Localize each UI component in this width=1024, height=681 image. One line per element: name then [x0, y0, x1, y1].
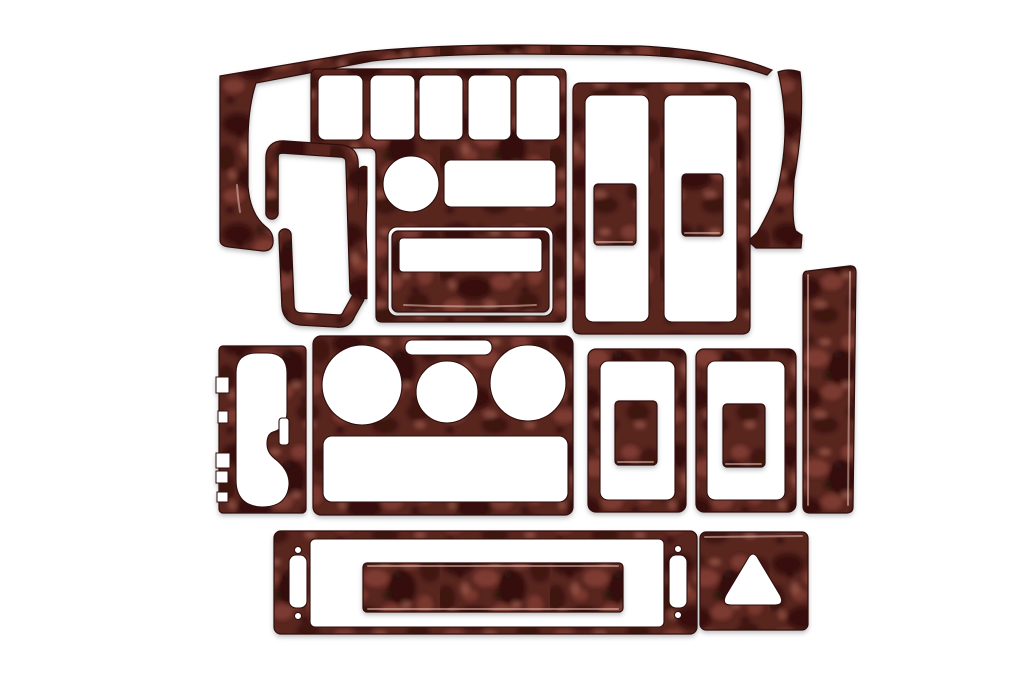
trim-kit-illustration: [0, 0, 1024, 681]
cutout-top-slot: [405, 340, 492, 355]
cutout-switch-5: [516, 75, 560, 140]
cutout-dial-left: [322, 345, 402, 425]
piece-lower-door-pull-trim: [285, 235, 358, 321]
cutout-radio-window: [399, 238, 542, 272]
notch-1: [216, 377, 229, 393]
cutout-end-slot-right: [669, 555, 687, 608]
piece-vertical-accent-strip: [360, 172, 366, 293]
cutout-switch-1: [318, 75, 363, 140]
piece-shifter-console-panel: [216, 346, 306, 513]
piece-radio-surround-insert: [392, 231, 549, 312]
piece-hazard-switch-plate: [700, 532, 808, 630]
piece-switch-button-right: [682, 174, 723, 236]
piece-right-pillar-trim: [748, 70, 802, 248]
cutout-switch-3: [419, 75, 463, 140]
cutout-dial-center: [416, 361, 478, 423]
notch-2: [218, 411, 228, 423]
notch-4: [216, 471, 228, 483]
cutout-gauge: [383, 156, 439, 212]
piece-window-switch-insert-right: [723, 404, 765, 467]
cutout-side-slot: [279, 418, 289, 445]
piece-side-vertical-plank: [803, 266, 856, 513]
screw-hole: [295, 613, 302, 620]
notch-3: [216, 453, 230, 468]
cutout-switch-4: [468, 75, 511, 140]
screw-hole: [295, 547, 302, 554]
cutout-switch-2: [370, 75, 415, 140]
product-photo: [0, 0, 1024, 681]
piece-vent-slat-insert: [363, 563, 623, 612]
screw-hole: [675, 546, 682, 553]
cutout-end-slot-left: [289, 555, 307, 608]
notch-5: [217, 492, 228, 502]
cutout-lower-bay: [323, 436, 568, 502]
piece-climate-control-panel: [313, 336, 573, 515]
piece-window-switch-insert-left: [615, 401, 657, 465]
cutout-vent: [444, 160, 556, 207]
piece-switch-button-left: [594, 184, 636, 245]
cutout-dial-right: [490, 345, 566, 421]
screw-hole: [675, 612, 682, 619]
